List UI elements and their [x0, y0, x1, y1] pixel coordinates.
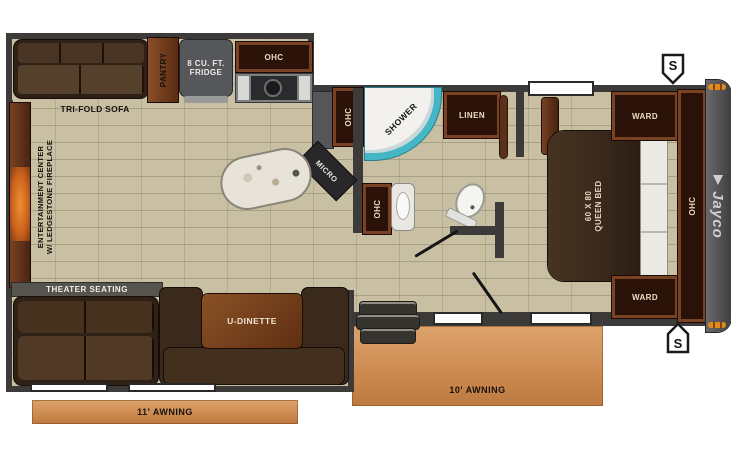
- theater-back-cushions: [18, 301, 154, 333]
- theater-seating-bar: THEATER SEATING: [12, 283, 162, 296]
- speaker-badge-top: S: [661, 53, 685, 85]
- linen-label: LINEN: [459, 111, 485, 120]
- burner-icon: [264, 79, 282, 97]
- wardrobe-top: WARD: [612, 92, 678, 140]
- fridge-front-trim: [184, 96, 228, 103]
- theater-seating: [14, 297, 158, 385]
- sink-basin: [396, 192, 410, 220]
- awning-11ft-label: 11' AWNING: [32, 407, 298, 417]
- u-dinette-table: U-DINETTE: [202, 294, 302, 348]
- dinette-seat-bottom: [164, 348, 344, 384]
- bedroom-window-bottom: [530, 312, 592, 325]
- ward-bottom-label: WARD: [632, 293, 658, 302]
- stove-counter: [236, 74, 312, 102]
- counter-right-pad: [299, 76, 310, 100]
- pantry-label: PANTRY: [157, 40, 169, 100]
- fireplace-glow: [10, 167, 30, 241]
- ward-top-label: WARD: [632, 112, 658, 121]
- sliding-door: [500, 96, 507, 158]
- bedroom-window-top: [528, 81, 594, 96]
- corner-counter: [313, 92, 333, 148]
- island-faucet-icon: [292, 169, 300, 177]
- entry-door-opening: [433, 312, 483, 325]
- mattress-pillows: [641, 133, 667, 279]
- marker-lights-top: [708, 84, 726, 90]
- speaker-badge-top-letter: S: [669, 58, 678, 73]
- entry-step-2: [357, 315, 419, 329]
- counter-left-pad: [238, 76, 249, 100]
- fridge: 8 CU. FT. FRIDGE: [180, 40, 232, 96]
- ohc-bedroom-label: OHC: [686, 166, 698, 246]
- fridge-label: 8 CU. FT. FRIDGE: [187, 59, 224, 77]
- linen-closet: LINEN: [444, 92, 500, 138]
- trailer-floorplan: 10' AWNING 11' AWNING TRI-FOLD SOFA PANT…: [0, 0, 731, 469]
- bedroom-wall: [516, 85, 524, 157]
- u-dinette-label: U-DINETTE: [227, 316, 277, 326]
- wardrobe-bottom: WARD: [612, 276, 678, 318]
- speaker-badge-bottom-letter: S: [674, 336, 683, 351]
- jayco-logo-text: Jayco: [710, 191, 727, 239]
- entry-step-1: [360, 302, 416, 315]
- bath-sink: [392, 184, 414, 230]
- micro-label: MICRO: [314, 158, 340, 184]
- ohc-kitchen-label: OHC: [265, 53, 284, 62]
- jayco-logo: Jayco: [706, 97, 730, 317]
- ohc-bath-label: OHC: [371, 187, 383, 231]
- awning-10ft-label: 10' AWNING: [352, 385, 603, 395]
- speaker-badge-bottom: S: [666, 322, 690, 354]
- entertainment-center-label: ENTERTAINMENT CENTER W/ LEDGESTONE FIREP…: [34, 87, 56, 307]
- theater-seat-cushions: [18, 336, 154, 380]
- bath-wall-vertical: [495, 202, 504, 258]
- sofa-back-cushions: [18, 43, 144, 63]
- entry-step-3: [361, 329, 415, 343]
- marker-lights-bottom: [708, 322, 726, 328]
- jayco-bird-icon: [713, 175, 723, 185]
- entertainment-center: [10, 103, 30, 287]
- theater-seating-label: THEATER SEATING: [46, 285, 128, 294]
- slide-window-right: [128, 383, 216, 392]
- cooktop: [251, 76, 297, 100]
- kitchen-bath-wall: [353, 88, 363, 233]
- slide-window-left: [30, 383, 108, 392]
- queen-bed-label: 60 X 80 QUEEN BED: [581, 136, 607, 276]
- overhead-cabinet-kitchen: OHC: [236, 42, 312, 72]
